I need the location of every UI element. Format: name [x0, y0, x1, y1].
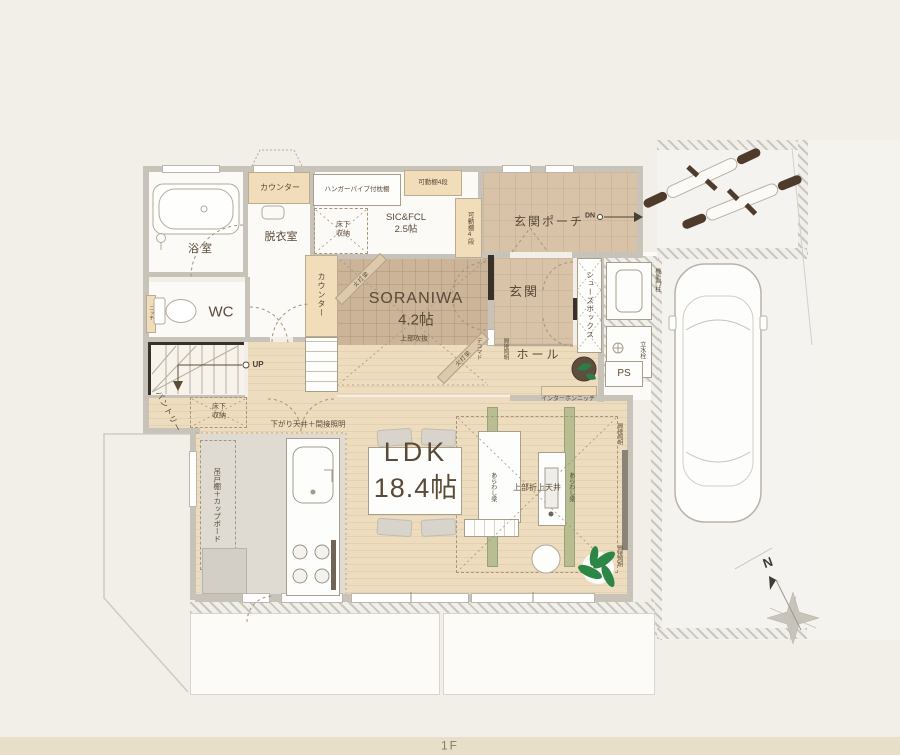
room-label-dressing: 脱衣室	[265, 231, 298, 245]
ps-label: PS	[617, 368, 630, 381]
intercom-niche-label: インターホンニッチ	[541, 396, 595, 404]
bay-outline	[252, 150, 302, 166]
exposed-beam-label: あらわし梁	[488, 472, 496, 502]
up-label: UP	[252, 360, 263, 370]
movable-shelf-label: 可動棚4段	[418, 179, 448, 187]
floor-label: 1F	[441, 739, 459, 754]
room-label-bath: 浴室	[188, 243, 214, 257]
deco-window-label: デコマド	[475, 338, 482, 360]
indirect-light-label: 間接照明	[616, 545, 623, 567]
plant-icon	[572, 357, 596, 381]
room-label-hall: ホール	[516, 348, 561, 363]
stove-icon	[293, 540, 336, 590]
shoes-box-label: シューズボックス	[585, 271, 594, 339]
room-label-porch: 玄関ポーチ	[514, 215, 584, 230]
gate-post-label: 機能門柱	[652, 268, 660, 292]
hanger-shelf-label: ハンガーパイプ付枕棚	[325, 186, 390, 194]
room-label-entrance: 玄関	[509, 284, 539, 300]
exposed-beam-label: あらわし梁	[566, 472, 574, 502]
gate-post-icon	[616, 270, 642, 312]
room-label-sic: SIC&FCL 2.5帖	[386, 212, 426, 236]
toilet-icon	[154, 298, 196, 324]
movable-shelf-label: 可動棚4段	[465, 212, 473, 245]
car-icon	[669, 264, 767, 522]
washbasin-icon	[262, 206, 284, 219]
indirect-light-label: 間接照明	[502, 338, 509, 360]
bathtub-icon	[153, 184, 239, 250]
stairs-icon	[152, 345, 238, 394]
plant-icon	[576, 545, 617, 588]
dn-label: DN	[585, 213, 595, 222]
window-tick	[411, 592, 533, 602]
indirect-light-label: 間接照明	[616, 423, 623, 445]
room-label-ldk: LDK	[384, 436, 449, 470]
site-boundary-line	[104, 434, 190, 692]
room-label-soraniwa-size: 4.2帖	[398, 312, 434, 331]
room-label-ldk-size: 18.4帖	[374, 472, 459, 506]
down-arrow	[598, 212, 644, 222]
room-label-soraniwa: SORANIWA	[369, 289, 464, 309]
kitchen-sink-icon	[293, 447, 333, 503]
water-tap-label: 立水栓	[637, 341, 645, 359]
coffered-ceiling-label: 上部折上天井	[513, 483, 561, 493]
niche-label: ニッチ	[148, 306, 154, 321]
round-table-icon	[532, 545, 560, 573]
underfloor-storage-label: 床下収納	[335, 221, 351, 239]
counter-label: カウンター	[260, 183, 300, 193]
room-label-wc: WC	[209, 304, 234, 323]
compass-icon	[767, 576, 819, 644]
floor-plan-canvas: 火打梁 火打梁	[0, 0, 900, 755]
lowered-ceiling-label: 下がり天井＋間接照明	[271, 419, 346, 428]
soraniwa-void-note: 上部吹抜	[400, 336, 428, 345]
hanging-cupboard-label: 吊戸棚＋カップボード	[212, 468, 221, 543]
floor-indicator-bar: 1F	[0, 737, 900, 755]
underfloor-storage-label: 床下収納	[211, 403, 227, 421]
plan-linework	[0, 0, 900, 755]
counter-label: カウンター	[316, 273, 326, 318]
water-tap-icon	[613, 343, 623, 353]
